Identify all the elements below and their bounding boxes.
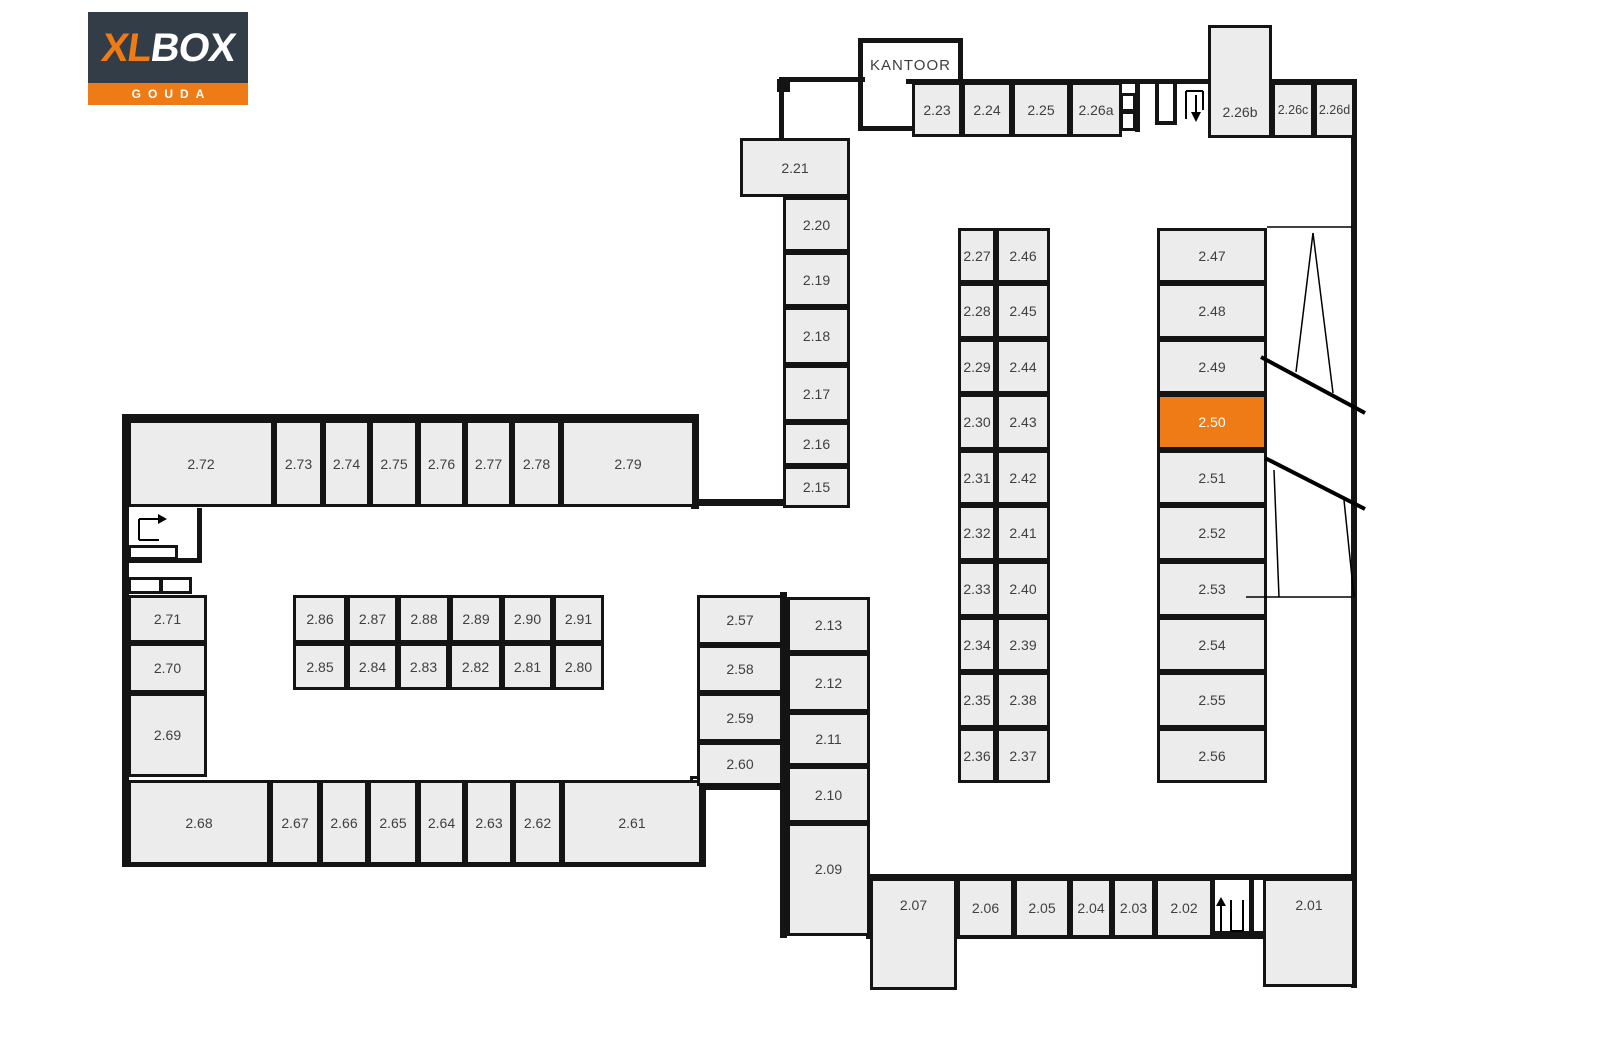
room-label: 2.64: [428, 815, 455, 831]
room-2.01[interactable]: 2.01: [1263, 878, 1355, 987]
room-2.16[interactable]: 2.16: [783, 422, 850, 466]
room-2.45[interactable]: 2.45: [996, 283, 1050, 339]
room-label: 2.61: [618, 815, 645, 831]
wall: [1173, 82, 1177, 125]
room-label: 2.09: [790, 861, 867, 877]
room-2.58[interactable]: 2.58: [697, 645, 783, 693]
room-2.59[interactable]: 2.59: [697, 693, 783, 742]
room-label: 2.84: [359, 659, 386, 675]
room-2.26c[interactable]: 2.26c: [1272, 82, 1314, 138]
door-box: [1120, 111, 1136, 131]
room-label: 2.21: [781, 160, 808, 176]
stairs-down-icon: [1186, 91, 1203, 122]
stairs-right-icon: [139, 514, 167, 540]
room-2.13[interactable]: 2.13: [787, 597, 870, 653]
room-2.73[interactable]: 2.73: [274, 420, 323, 507]
room-2.18[interactable]: 2.18: [783, 307, 850, 365]
wall: [693, 499, 785, 506]
wall: [1351, 79, 1357, 988]
room-2.43[interactable]: 2.43: [996, 394, 1050, 450]
room-label: 2.86: [306, 611, 333, 627]
room-label: 2.29: [963, 359, 990, 375]
room-label: 2.63: [475, 815, 502, 831]
room-2.30[interactable]: 2.30: [958, 394, 996, 450]
room-2.51[interactable]: 2.51: [1157, 450, 1267, 505]
room-2.76[interactable]: 2.76: [418, 420, 465, 507]
room-label: 2.69: [154, 727, 181, 743]
room-label: 2.28: [963, 303, 990, 319]
room-label: 2.82: [462, 659, 489, 675]
room-label: 2.37: [1009, 748, 1036, 764]
room-label: 2.60: [726, 756, 753, 772]
logo-box-text: BOX: [148, 26, 238, 70]
room-label: 2.51: [1198, 470, 1225, 486]
room-label: 2.33: [963, 581, 990, 597]
room-2.74[interactable]: 2.74: [323, 420, 370, 507]
room-2.48[interactable]: 2.48: [1157, 283, 1267, 339]
room-label: 2.10: [815, 787, 842, 803]
room-2.40[interactable]: 2.40: [996, 561, 1050, 617]
room-2.80[interactable]: 2.80: [553, 643, 604, 690]
room-label: 2.40: [1009, 581, 1036, 597]
room-label: 2.73: [285, 456, 312, 472]
room-2.46[interactable]: 2.46: [996, 228, 1050, 283]
room-2.37[interactable]: 2.37: [996, 728, 1050, 783]
room-2.21[interactable]: 2.21: [740, 138, 850, 197]
room-label: 2.71: [154, 611, 181, 627]
room-label: 2.48: [1198, 303, 1225, 319]
room-label: 2.46: [1009, 248, 1036, 264]
room-2.84[interactable]: 2.84: [347, 643, 398, 690]
room-2.27[interactable]: 2.27: [958, 228, 996, 283]
room-label: 2.53: [1198, 581, 1225, 597]
wall: [197, 508, 202, 562]
room-2.82[interactable]: 2.82: [449, 643, 502, 690]
room-label: 2.26c: [1278, 103, 1309, 117]
room-2.10[interactable]: 2.10: [787, 766, 870, 823]
room-2.87[interactable]: 2.87: [347, 595, 398, 643]
room-label: 2.90: [514, 611, 541, 627]
room-2.33[interactable]: 2.33: [958, 561, 996, 617]
room-2.50[interactable]: 2.50: [1157, 394, 1267, 450]
room-label: 2.74: [333, 456, 360, 472]
room-2.57[interactable]: 2.57: [697, 595, 783, 645]
room-2.77[interactable]: 2.77: [465, 420, 512, 507]
wall: [1249, 874, 1254, 936]
room-label: 2.67: [281, 815, 308, 831]
room-label: 2.05: [1028, 900, 1055, 916]
room-2.72[interactable]: 2.72: [128, 420, 274, 507]
room-label: 2.16: [803, 436, 830, 452]
door-box: [160, 577, 192, 594]
room-2.49[interactable]: 2.49: [1157, 339, 1267, 394]
room-2.44[interactable]: 2.44: [996, 339, 1050, 394]
room-2.42[interactable]: 2.42: [996, 450, 1050, 505]
room-label: 2.65: [379, 815, 406, 831]
room-2.04[interactable]: 2.04: [1070, 878, 1112, 938]
room-label: 2.66: [330, 815, 357, 831]
room-2.12[interactable]: 2.12: [787, 653, 870, 712]
room-label: 2.12: [815, 675, 842, 691]
room-2.86[interactable]: 2.86: [293, 595, 347, 643]
room-label: 2.04: [1077, 900, 1104, 916]
door-box: [1120, 93, 1136, 112]
room-label: 2.20: [803, 217, 830, 233]
room-2.90[interactable]: 2.90: [502, 595, 553, 643]
room-label: 2.02: [1170, 900, 1197, 916]
room-2.69[interactable]: 2.69: [128, 693, 207, 777]
room-2.63[interactable]: 2.63: [465, 780, 513, 865]
room-2.53[interactable]: 2.53: [1157, 561, 1267, 617]
room-label: 2.07: [873, 897, 954, 913]
room-2.39[interactable]: 2.39: [996, 617, 1050, 672]
room-label: 2.89: [462, 611, 489, 627]
room-2.19[interactable]: 2.19: [783, 252, 850, 307]
room-label: 2.43: [1009, 414, 1036, 430]
room-2.38[interactable]: 2.38: [996, 672, 1050, 728]
room-2.11[interactable]: 2.11: [787, 712, 870, 766]
door-box: [128, 545, 178, 560]
office-label: KANTOOR: [863, 57, 958, 74]
logo-wordmark: XLBOX: [88, 12, 248, 83]
room-label: 2.50: [1198, 414, 1225, 430]
room-label: 2.91: [565, 611, 592, 627]
room-2.32[interactable]: 2.32: [958, 505, 996, 561]
room-label: 2.26b: [1211, 104, 1269, 120]
room-label: 2.18: [803, 328, 830, 344]
room-label: 2.75: [380, 456, 407, 472]
wall: [1155, 121, 1177, 125]
room-label: 2.68: [185, 815, 212, 831]
room-label: 2.49: [1198, 359, 1225, 375]
wall: [1155, 82, 1159, 125]
ramp-lines-thick: [1261, 357, 1365, 509]
room-2.64[interactable]: 2.64: [418, 780, 465, 865]
room-label: 2.57: [726, 612, 753, 628]
room-label: 2.19: [803, 272, 830, 288]
room-label: 2.80: [565, 659, 592, 675]
room-label: 2.55: [1198, 692, 1225, 708]
door-box: [128, 577, 162, 594]
wall-marker: [777, 79, 790, 92]
room-2.65[interactable]: 2.65: [368, 780, 418, 865]
room-2.26b[interactable]: 2.26b: [1208, 25, 1272, 138]
room-2.79[interactable]: 2.79: [561, 420, 695, 507]
wall: [781, 77, 865, 82]
room-2.28[interactable]: 2.28: [958, 283, 996, 339]
room-2.71[interactable]: 2.71: [128, 595, 207, 643]
room-2.20[interactable]: 2.20: [783, 197, 850, 252]
room-label: 2.06: [972, 900, 999, 916]
room-2.24[interactable]: 2.24: [962, 82, 1012, 137]
room-2.15[interactable]: 2.15: [783, 466, 850, 508]
room-2.52[interactable]: 2.52: [1157, 505, 1267, 561]
room-label: 2.26d: [1319, 103, 1350, 117]
room-label: 2.38: [1009, 692, 1036, 708]
room-label: 2.83: [410, 659, 437, 675]
room-label: 2.11: [815, 731, 841, 747]
room-2.81[interactable]: 2.81: [502, 643, 553, 690]
room-label: 2.32: [963, 525, 990, 541]
room-2.61[interactable]: 2.61: [562, 780, 702, 865]
room-label: 2.15: [803, 479, 830, 495]
room-2.25[interactable]: 2.25: [1012, 82, 1070, 137]
room-label: 2.88: [410, 611, 437, 627]
room-2.47[interactable]: 2.47: [1157, 228, 1267, 283]
room-2.83[interactable]: 2.83: [398, 643, 449, 690]
room-label: 2.39: [1009, 637, 1036, 653]
room-2.70[interactable]: 2.70: [128, 643, 207, 693]
room-label: 2.17: [803, 386, 830, 402]
room-label: 2.44: [1009, 359, 1036, 375]
room-2.26d[interactable]: 2.26d: [1314, 82, 1355, 138]
room-label: 2.52: [1198, 525, 1225, 541]
floor-plan: XLBOX GOUDA KANTOOR 2.232.242.252.26a2.2…: [0, 0, 1600, 1040]
room-2.41[interactable]: 2.41: [996, 505, 1050, 561]
room-2.36[interactable]: 2.36: [958, 728, 996, 783]
room-label: 2.85: [306, 659, 333, 675]
room-2.66[interactable]: 2.66: [320, 780, 368, 865]
room-label: 2.34: [963, 637, 990, 653]
room-label: 2.24: [973, 102, 1000, 118]
room-2.23[interactable]: 2.23: [912, 82, 962, 137]
room-2.67[interactable]: 2.67: [270, 780, 320, 865]
room-label: 2.23: [923, 102, 950, 118]
room-2.62[interactable]: 2.62: [513, 780, 562, 865]
room-label: 2.41: [1009, 525, 1036, 541]
room-2.34[interactable]: 2.34: [958, 617, 996, 672]
room-2.91[interactable]: 2.91: [553, 595, 604, 643]
stairs-up-icon: [1216, 897, 1243, 932]
room-label: 2.62: [524, 815, 551, 831]
logo-city-text: GOUDA: [88, 83, 248, 105]
logo-xl-text: XL: [99, 26, 154, 70]
room-2.60[interactable]: 2.60: [697, 742, 783, 786]
room-label: 2.47: [1198, 248, 1225, 264]
room-label: 2.58: [726, 661, 753, 677]
room-2.06[interactable]: 2.06: [957, 878, 1014, 938]
room-2.55[interactable]: 2.55: [1157, 672, 1267, 728]
room-2.78[interactable]: 2.78: [512, 420, 561, 507]
room-2.54[interactable]: 2.54: [1157, 617, 1267, 672]
room-label: 2.87: [359, 611, 386, 627]
room-2.35[interactable]: 2.35: [958, 672, 996, 728]
room-label: 2.77: [475, 456, 502, 472]
room-2.88[interactable]: 2.88: [398, 595, 450, 643]
room-2.29[interactable]: 2.29: [958, 339, 996, 394]
room-label: 2.70: [154, 660, 181, 676]
room-label: 2.35: [963, 692, 990, 708]
room-label: 2.81: [514, 659, 541, 675]
room-label: 2.54: [1198, 637, 1225, 653]
room-label: 2.78: [523, 456, 550, 472]
room-2.75[interactable]: 2.75: [370, 420, 418, 507]
room-label: 2.27: [963, 248, 990, 264]
room-2.56[interactable]: 2.56: [1157, 728, 1267, 783]
room-label: 2.13: [815, 617, 842, 633]
room-2.02[interactable]: 2.02: [1155, 878, 1213, 938]
room-2.68[interactable]: 2.68: [128, 780, 270, 865]
room-label: 2.30: [963, 414, 990, 430]
room-2.07[interactable]: 2.07: [870, 878, 957, 990]
xlbox-logo: XLBOX GOUDA: [88, 12, 248, 105]
room-label: 2.01: [1266, 897, 1352, 913]
room-label: 2.03: [1120, 900, 1147, 916]
room-label: 2.36: [963, 748, 990, 764]
room-2.03[interactable]: 2.03: [1112, 878, 1155, 938]
room-label: 2.72: [187, 456, 214, 472]
room-2.85[interactable]: 2.85: [293, 643, 347, 690]
room-label: 2.26a: [1078, 102, 1113, 118]
room-label: 2.59: [726, 710, 753, 726]
room-label: 2.56: [1198, 748, 1225, 764]
room-2.09[interactable]: 2.09: [787, 823, 870, 936]
room-label: 2.79: [614, 456, 641, 472]
room-label: 2.25: [1027, 102, 1054, 118]
room-label: 2.76: [428, 456, 455, 472]
room-label: 2.42: [1009, 470, 1036, 486]
room-2.17[interactable]: 2.17: [783, 365, 850, 422]
room-2.05[interactable]: 2.05: [1014, 878, 1070, 938]
room-label: 2.31: [963, 470, 990, 486]
room-2.31[interactable]: 2.31: [958, 450, 996, 505]
room-label: 2.45: [1009, 303, 1036, 319]
room-2.89[interactable]: 2.89: [450, 595, 502, 643]
room-2.26a[interactable]: 2.26a: [1070, 82, 1122, 137]
